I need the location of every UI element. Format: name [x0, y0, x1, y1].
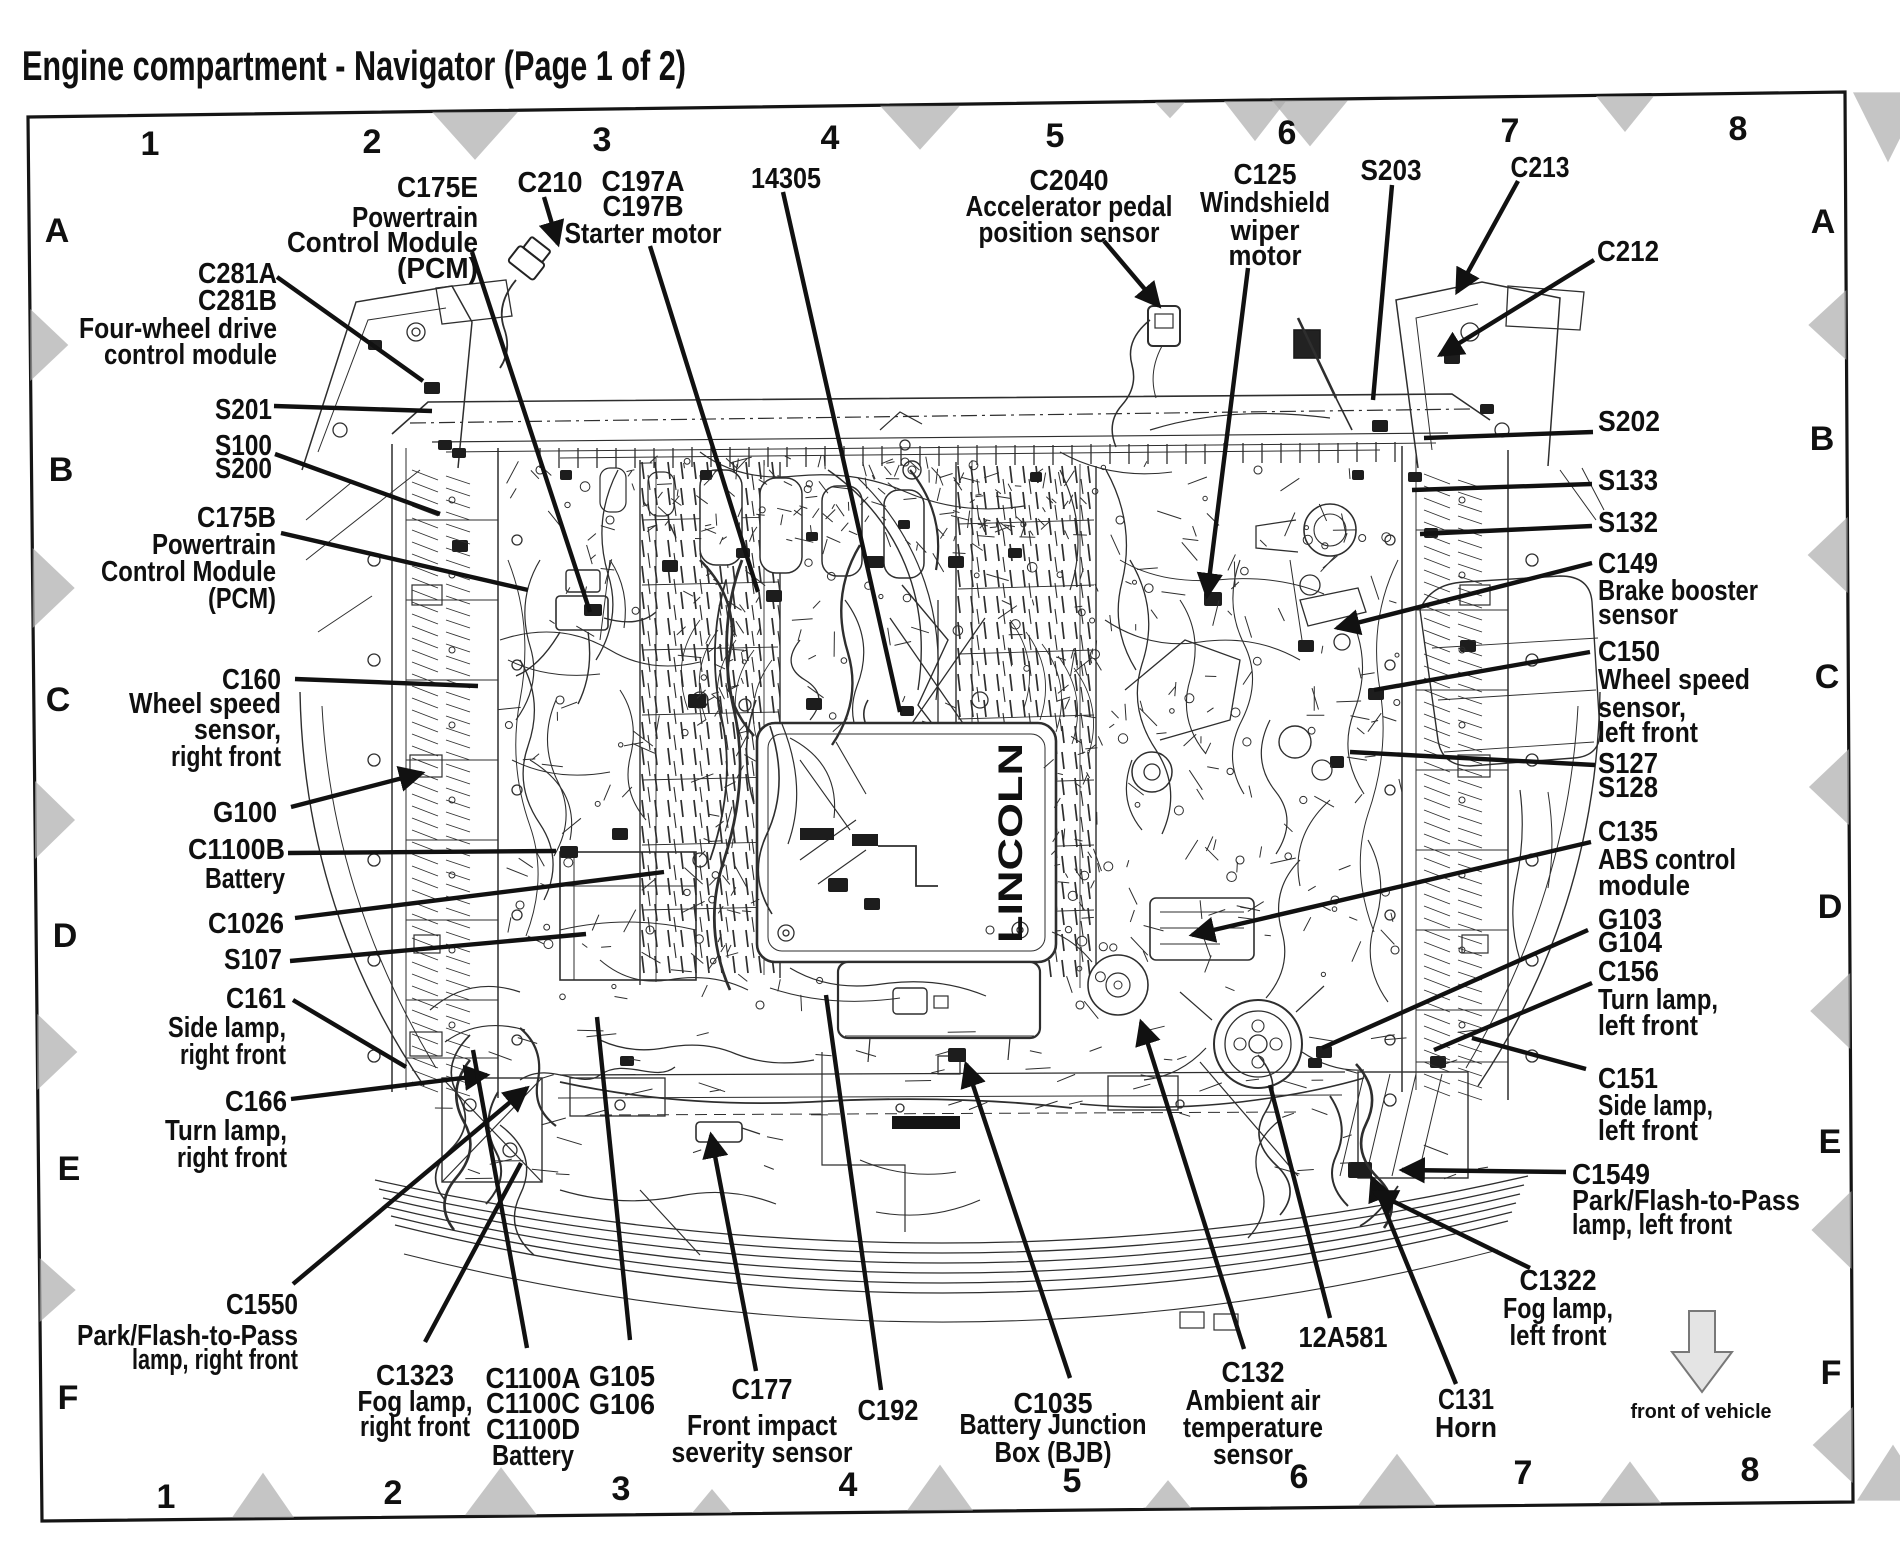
svg-text:A: A: [45, 212, 70, 250]
svg-text:S203: S203: [1361, 155, 1422, 187]
svg-text:S128: S128: [1598, 772, 1658, 804]
svg-text:Starter motor: Starter motor: [565, 218, 722, 250]
svg-text:S132: S132: [1598, 507, 1658, 539]
svg-text:right front: right front: [360, 1411, 470, 1443]
svg-text:C166: C166: [225, 1086, 287, 1118]
svg-text:F: F: [1821, 1354, 1842, 1392]
svg-text:4: 4: [839, 1466, 858, 1504]
svg-text:C1100B: C1100B: [188, 834, 285, 866]
svg-text:Box (BJB): Box (BJB): [995, 1437, 1112, 1469]
svg-text:LINCOLN: LINCOLN: [992, 743, 1030, 943]
svg-text:S107: S107: [224, 944, 282, 976]
svg-text:C: C: [1815, 658, 1840, 696]
svg-text:3: 3: [593, 121, 612, 159]
svg-text:14305: 14305: [751, 163, 821, 195]
svg-text:left front: left front: [1510, 1320, 1607, 1352]
svg-text:D: D: [1818, 888, 1843, 926]
svg-text:Battery: Battery: [492, 1440, 574, 1472]
svg-text:lamp, right front: lamp, right front: [132, 1344, 298, 1376]
svg-text:G100: G100: [213, 797, 277, 829]
svg-text:7: 7: [1514, 1454, 1533, 1492]
svg-text:S202: S202: [1598, 406, 1660, 438]
svg-text:front of vehicle: front of vehicle: [1631, 1401, 1772, 1423]
svg-text:C: C: [46, 681, 71, 719]
svg-text:8: 8: [1729, 110, 1748, 148]
svg-text:1: 1: [157, 1478, 176, 1516]
svg-text:Horn: Horn: [1435, 1412, 1497, 1444]
svg-text:left front: left front: [1598, 717, 1698, 749]
svg-text:right front: right front: [180, 1039, 286, 1071]
svg-text:F: F: [58, 1379, 79, 1417]
svg-text:C212: C212: [1597, 236, 1659, 268]
svg-text:C1550: C1550: [226, 1289, 298, 1321]
svg-text:left front: left front: [1598, 1010, 1698, 1042]
svg-text:C192: C192: [858, 1395, 919, 1427]
svg-text:right front: right front: [171, 741, 281, 773]
svg-text:control module: control module: [104, 339, 277, 371]
svg-text:D: D: [53, 917, 78, 955]
svg-text:C1026: C1026: [208, 908, 284, 940]
svg-text:S201: S201: [215, 394, 272, 426]
svg-text:S200: S200: [215, 453, 272, 485]
svg-text:2: 2: [384, 1474, 403, 1512]
svg-text:right front: right front: [177, 1142, 287, 1174]
svg-text:B: B: [1810, 420, 1835, 458]
svg-text:Battery: Battery: [205, 863, 285, 895]
svg-text:6: 6: [1278, 114, 1297, 152]
svg-text:motor: motor: [1229, 240, 1302, 272]
svg-text:1: 1: [141, 125, 160, 163]
svg-text:G106: G106: [589, 1389, 655, 1421]
svg-text:3: 3: [612, 1470, 631, 1508]
svg-text:5: 5: [1046, 117, 1065, 155]
svg-text:module: module: [1598, 870, 1690, 902]
svg-text:C177: C177: [732, 1374, 793, 1406]
svg-text:(PCM): (PCM): [208, 583, 276, 615]
svg-text:G104: G104: [1598, 927, 1662, 959]
svg-text:E: E: [58, 1150, 81, 1188]
svg-text:(PCM): (PCM): [397, 253, 478, 285]
svg-text:Engine compartment - Navigator: Engine compartment - Navigator (Page 1 o…: [22, 42, 686, 89]
svg-text:C213: C213: [1511, 152, 1570, 184]
svg-text:8: 8: [1741, 1451, 1760, 1489]
svg-text:lamp, left front: lamp, left front: [1572, 1209, 1732, 1241]
svg-text:7: 7: [1501, 112, 1520, 150]
svg-text:S133: S133: [1598, 465, 1658, 497]
svg-text:2: 2: [363, 123, 382, 161]
svg-text:sensor: sensor: [1213, 1439, 1293, 1471]
svg-text:12A581: 12A581: [1299, 1322, 1388, 1354]
svg-text:B: B: [49, 451, 74, 489]
svg-text:left front: left front: [1598, 1115, 1698, 1147]
svg-text:sensor: sensor: [1598, 599, 1678, 631]
svg-text:position sensor: position sensor: [979, 217, 1160, 249]
svg-text:A: A: [1811, 203, 1836, 241]
svg-text:E: E: [1819, 1123, 1842, 1161]
svg-text:C210: C210: [518, 167, 583, 199]
svg-text:4: 4: [821, 119, 840, 157]
svg-text:severity sensor: severity sensor: [672, 1437, 853, 1469]
svg-text:C161: C161: [226, 983, 286, 1015]
svg-text:C175E: C175E: [397, 172, 478, 204]
